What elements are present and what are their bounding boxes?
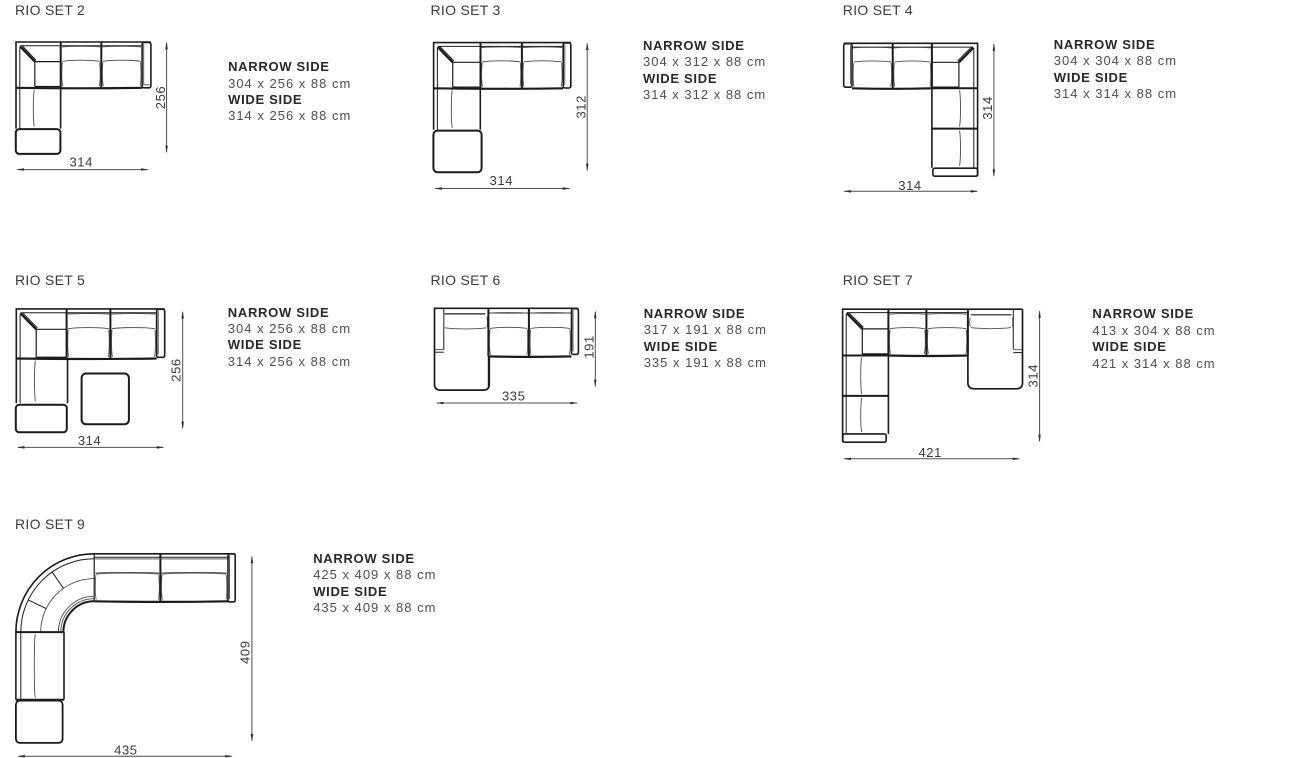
svg-text:256: 256 bbox=[169, 358, 184, 382]
svg-text:191: 191 bbox=[582, 335, 597, 359]
svg-text:314: 314 bbox=[1026, 364, 1041, 388]
svg-text:312: 312 bbox=[574, 95, 589, 119]
svg-text:435: 435 bbox=[114, 742, 138, 757]
svg-text:314: 314 bbox=[490, 173, 514, 188]
svg-text:314: 314 bbox=[898, 178, 922, 193]
svg-text:314: 314 bbox=[69, 155, 93, 170]
svg-text:256: 256 bbox=[153, 86, 168, 110]
svg-text:335: 335 bbox=[502, 388, 526, 403]
svg-text:314: 314 bbox=[980, 96, 995, 120]
svg-text:314: 314 bbox=[78, 433, 102, 448]
svg-text:409: 409 bbox=[238, 640, 253, 664]
svg-text:421: 421 bbox=[918, 445, 942, 460]
